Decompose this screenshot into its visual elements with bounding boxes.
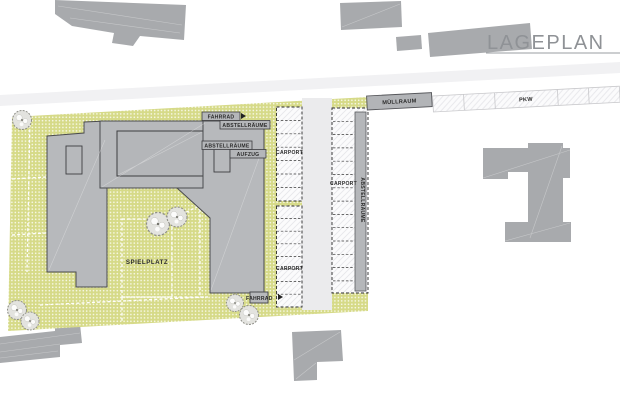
site-plan: LAGEPLAN MÜLLRAUM PKW <box>0 0 620 410</box>
tree-icon <box>13 111 32 130</box>
fahrrad-bottom-label: FAHRRAD <box>246 296 273 302</box>
page-title: LAGEPLAN <box>487 32 605 54</box>
tree-icon <box>240 306 259 325</box>
aufzug-label: AUFZUG <box>237 152 260 158</box>
carport-left-bottom <box>277 206 303 307</box>
carport-left-top-label: CARPORT <box>276 150 304 156</box>
tree-icon <box>21 312 39 330</box>
tree-icon <box>167 207 187 227</box>
fahrrad-top-label: FAHRRAD <box>208 114 235 120</box>
tree-icon <box>227 295 244 312</box>
tree-icon <box>147 213 170 236</box>
abstellraeume-vertical-label: ABSTELLRÄUME <box>359 177 366 223</box>
context-building-top-left <box>55 0 186 46</box>
pkw-label: PKW <box>519 97 534 104</box>
carport-right-label: CARPORT <box>330 181 358 187</box>
context-building-bottom-mid <box>292 330 343 381</box>
driveway <box>302 98 332 310</box>
muellraum-box: MÜLLRAUM <box>367 93 433 110</box>
pkw-strip: PKW <box>433 86 620 112</box>
spielplatz-label: SPIELPLATZ <box>126 259 168 266</box>
abstellraeume-mid-label: ABSTELLRÄUME <box>204 142 250 149</box>
carport-left-bottom-label: CARPORT <box>276 266 304 272</box>
context-building-top-mid-2 <box>396 35 422 51</box>
abstellraeume-top-label: ABSTELLRÄUME <box>222 122 268 129</box>
